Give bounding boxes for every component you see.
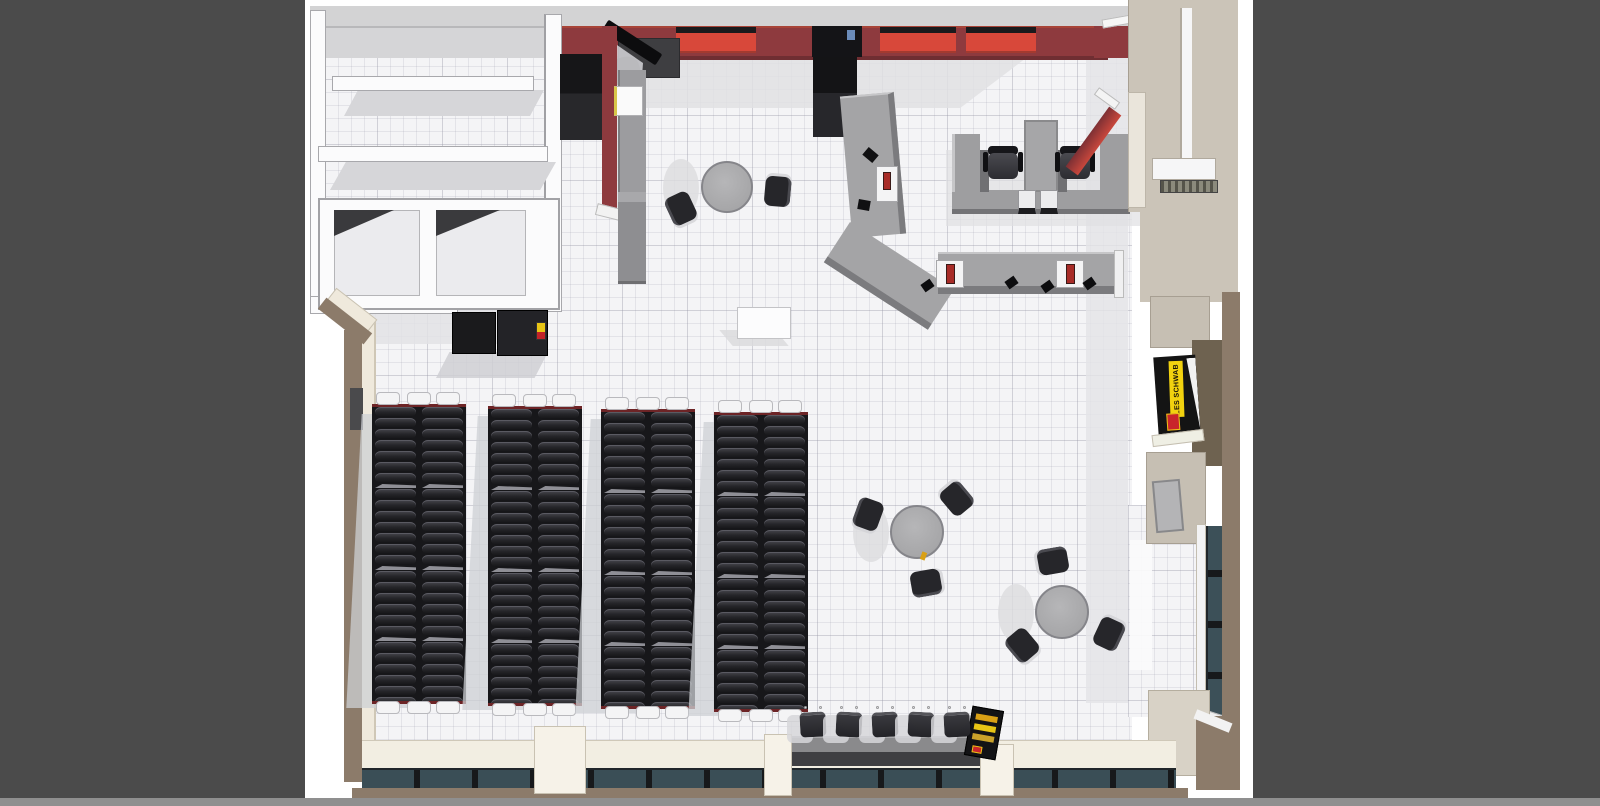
waiting-chair-5 [943,711,970,737]
tire [764,650,805,660]
tire [764,508,805,518]
tire-column [375,407,416,701]
tire [422,500,463,510]
tire [375,489,416,499]
tire [651,598,692,608]
tire-column [764,415,805,709]
tire [491,442,532,452]
tire [375,642,416,652]
white-box-table [737,307,791,339]
tire [764,634,805,644]
tire [604,538,645,548]
tire [604,620,645,630]
waiting-chair-leg [876,706,879,709]
tire [651,560,692,570]
tire [651,456,692,466]
rack-cap-bottom [436,701,460,714]
brand-banner: LES SCHWAB [1169,361,1185,417]
tire [538,431,579,441]
tire [375,418,416,428]
rack-cap-top [523,394,547,407]
terminal-2 [1040,190,1058,214]
office-chair-2-arm-left [1055,152,1060,172]
tire [538,688,579,698]
tire [538,584,579,594]
tire [422,533,463,543]
rack-cap-bottom [749,709,773,722]
tire [422,642,463,652]
tire [422,407,463,417]
tire [422,418,463,428]
tire [422,511,463,521]
tire [422,451,463,461]
red-bay-1 [676,27,756,53]
display-panel-2-graphic [946,264,955,284]
rack-cap-bottom [492,703,516,716]
tire [422,544,463,554]
tire [491,584,532,594]
shelf-2-shadow [330,162,556,190]
tire [538,420,579,430]
rack-cap-top [492,394,516,407]
sales-desk-center-column [1024,120,1058,192]
tire [651,587,692,597]
right-outer-wall-brown [1222,292,1240,788]
tire [764,459,805,469]
tire [717,481,758,491]
sales-desk-right-arm [1100,134,1130,192]
tire [764,481,805,491]
tire [538,491,579,501]
tire-column [717,415,758,709]
cafe-table-top [701,161,753,213]
tire [538,535,579,545]
tire [491,431,532,441]
brochure-logo-dot [971,745,982,754]
tire [422,615,463,625]
rack-shelf-line [491,486,532,490]
tire [717,683,758,693]
rack-shelf-line [375,637,416,641]
tire [764,612,805,622]
tire [764,541,805,551]
tire [717,612,758,622]
tire-column [538,409,579,703]
waiting-chair-leg [912,706,915,709]
tire [764,579,805,589]
tire [538,606,579,616]
rack-shelf-line [538,639,579,643]
tire-rack-3 [601,409,695,709]
tire [491,688,532,698]
tire [717,470,758,480]
tire [651,516,692,526]
tire [717,590,758,600]
rack-shelf-line [764,574,805,578]
rack-shelf-line [538,486,579,490]
waiting-chair-leg [891,706,894,709]
tire [422,686,463,696]
office-chair-1-arm-left [983,152,988,172]
tire [422,626,463,636]
rack-shelf-line [491,568,532,572]
rack-shelf-line [717,492,758,496]
tire [491,699,532,703]
tire [604,423,645,433]
cafe-table-right [1035,585,1089,639]
tire [422,429,463,439]
waiting-chair-leg [948,706,951,709]
rack-shelf-line [422,637,463,641]
tire [717,661,758,671]
tire [375,533,416,543]
tire [764,623,805,633]
tire [375,626,416,636]
tire [717,650,758,660]
tire [491,464,532,474]
waiting-chair-leg [963,706,966,709]
rack-cap-bottom [407,701,431,714]
rack-cap-top [605,397,629,410]
tire [717,623,758,633]
tire [422,462,463,472]
tire [375,582,416,592]
tire [717,415,758,425]
entry-mat-left [560,54,606,140]
wall-shelf-1 [332,76,534,91]
tire [538,557,579,567]
rack-cap-bottom [605,706,629,719]
tire [604,658,645,668]
tire [375,407,416,417]
tire [764,694,805,704]
tire [764,426,805,436]
tire [491,617,532,627]
backdrop-bottom-strip [0,798,1600,806]
tire [651,620,692,630]
waiting-bench-front [792,752,980,766]
waiting-chair-leg [804,706,807,709]
tire [491,573,532,583]
red-bay-3 [966,27,1036,53]
tire [651,505,692,515]
tire [651,434,692,444]
tire [491,546,532,556]
tire [717,437,758,447]
tire [717,426,758,436]
tire [375,664,416,674]
partition-cabinet [618,192,646,284]
tire-rack-4 [714,412,808,712]
tire [604,445,645,455]
red-wall-corner [1094,26,1130,58]
tire [375,571,416,581]
door-pillar-2 [764,734,792,796]
tire [538,546,579,556]
rack-cap-bottom [718,709,742,722]
tire [491,644,532,654]
tire [538,677,579,687]
rack-cap-top [665,397,689,410]
tire-column [422,407,463,701]
brochure-row-1 [975,713,998,723]
tire [375,473,416,483]
rack-shelf-line [375,484,416,488]
tire [717,448,758,458]
rack-shelf-line [375,566,416,570]
tire [604,505,645,515]
tire [651,423,692,433]
rack-shelf-line [764,492,805,496]
rack-cap-top [552,394,576,407]
tire [604,494,645,504]
tire [651,527,692,537]
rack-shelf-line [422,484,463,488]
tire [717,579,758,589]
tire [604,680,645,690]
tire [375,697,416,701]
tire [764,563,805,573]
tire [604,598,645,608]
rack-shelf-line [538,568,579,572]
tire [604,478,645,488]
cafe-table-right-chair-2 [1036,545,1070,576]
tire [651,669,692,679]
tire [604,702,645,706]
checkout-counter-endcap [1114,250,1124,298]
tire [538,655,579,665]
cafe-table-top-chair-2 [764,175,793,207]
tire [422,582,463,592]
tire [375,451,416,461]
brand-sign-text: LES SCHWAB [1169,363,1184,414]
window-light-patch [1130,540,1152,670]
tire [422,473,463,483]
tire-rack-2 [488,406,582,706]
tire [422,604,463,614]
terminal-1 [1018,190,1036,214]
tire [717,563,758,573]
tire [538,502,579,512]
rack-cap-top [407,392,431,405]
rack-cap-bottom [523,703,547,716]
tire [375,604,416,614]
tire [651,702,692,706]
tire [538,513,579,523]
cafe-table-mid [890,505,944,559]
rack-cap-top [778,400,802,413]
tire [717,634,758,644]
tire [764,415,805,425]
tire [651,478,692,488]
tire [604,456,645,466]
tire [491,595,532,605]
tire [375,429,416,439]
alcove-grille [1160,180,1218,193]
tire [604,527,645,537]
tire [538,628,579,638]
tire [422,555,463,565]
counter-item-2 [857,199,871,211]
tire [764,601,805,611]
tire [375,653,416,663]
tire [491,513,532,523]
rack-cap-top [636,397,660,410]
floor-plan-render: LES SCHWAB [0,0,1600,806]
tire [491,628,532,638]
tire [538,595,579,605]
tire [538,666,579,676]
backdrop-left-panel [0,0,305,798]
rack-cap-top [749,400,773,413]
tire [491,453,532,463]
tire [764,705,805,709]
tire [717,530,758,540]
counter-appliance [614,86,643,116]
rack-cap-bottom [665,706,689,719]
tire [491,666,532,676]
tire [651,631,692,641]
tire [375,511,416,521]
black-display-left [452,312,496,354]
tire-column [491,409,532,703]
tire [491,475,532,485]
tire [764,683,805,693]
tire [375,522,416,532]
tire [604,576,645,586]
tire [491,557,532,567]
office-chair-1-arm-right [1018,152,1023,172]
tire-column [604,412,645,706]
tire [651,538,692,548]
tire [491,655,532,665]
rack-shelf-line [764,645,805,649]
tire [651,494,692,504]
tire [764,437,805,447]
waiting-chair-leg [819,706,822,709]
cafe-table-mid-chair-3 [909,568,943,599]
tire [604,647,645,657]
tire [764,672,805,682]
tire [764,448,805,458]
rack-shelf-line [651,571,692,575]
tire [717,459,758,469]
door-sign-chip [847,30,855,40]
tire [491,524,532,534]
rack-shelf-line [651,642,692,646]
tire [491,677,532,687]
tire [764,552,805,562]
rack-cap-bottom [376,701,400,714]
display-panel-3-graphic [1066,264,1075,284]
rack-shelf-line [717,574,758,578]
rack-shelf-line [604,489,645,493]
tire-rack-1 [372,404,466,704]
tire [717,508,758,518]
tire [491,491,532,501]
tire [604,516,645,526]
shelf-1-shadow [344,90,544,116]
rack-shelf-line [604,642,645,646]
waiting-chair-leg [840,706,843,709]
rack-cap-top [436,392,460,405]
rack-cap-top [718,400,742,413]
tire [538,475,579,485]
tire [651,445,692,455]
brand-logo-box [1166,413,1180,431]
tire-column [651,412,692,706]
tire [538,644,579,654]
rack-cap-top [376,392,400,405]
waiting-chair-leg [927,706,930,709]
tire [764,470,805,480]
tire [764,661,805,671]
tire [764,519,805,529]
tire [491,606,532,616]
tire [375,544,416,554]
tire [422,522,463,532]
tire [491,502,532,512]
tire [604,609,645,619]
rack-shelf-line [717,645,758,649]
tire [538,442,579,452]
display-brand-chip [536,322,546,340]
tire [604,669,645,679]
tire [717,672,758,682]
tire [717,497,758,507]
tire [538,524,579,534]
roof-band [310,6,1186,28]
tire [604,467,645,477]
tire [604,412,645,422]
tire [651,412,692,422]
display-panel-1-graphic [883,172,891,190]
tire [717,694,758,704]
tire [604,560,645,570]
tire [375,615,416,625]
tire [651,658,692,668]
tire [604,549,645,559]
door-pillar-1 [534,726,586,794]
right-wall-notch [1128,92,1146,208]
tire [764,590,805,600]
office-chair-1-seat [988,153,1018,179]
tire [717,541,758,551]
red-partition [602,26,617,210]
tire [422,653,463,663]
tire [604,434,645,444]
brochure-row-3 [972,733,995,743]
tire [764,530,805,540]
tire [538,573,579,583]
right-wall-tan-mid [1140,210,1238,302]
tire [764,497,805,507]
tire [651,647,692,657]
tire [375,500,416,510]
tire [538,453,579,463]
tire [717,705,758,709]
tire [717,601,758,611]
rack-shelf-line [491,639,532,643]
sales-desk-left-arm [952,134,980,192]
tire [422,489,463,499]
tire [538,409,579,419]
tire [422,571,463,581]
rack-shelf-line [604,571,645,575]
tire [651,576,692,586]
rack-shelf-line [651,489,692,493]
wall-shelf-2 [318,146,548,162]
